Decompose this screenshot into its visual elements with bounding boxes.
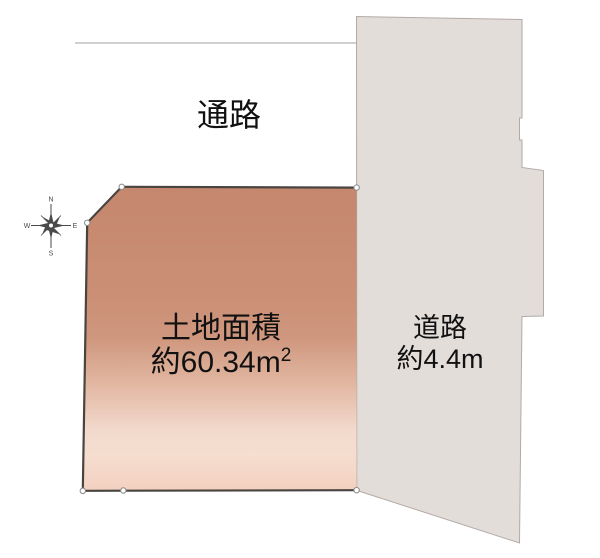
plot-area-sup: 2 (281, 345, 292, 366)
compass-rose-icon: N E S W (24, 197, 78, 258)
road-parcel-shape (357, 17, 544, 544)
plot-area-value: 約60.34m2 (101, 346, 341, 380)
compass-south-letter: S (49, 251, 54, 258)
compass-north-letter: N (48, 197, 53, 204)
compass-east-letter: E (73, 223, 78, 230)
corner-marker-bottom-right (354, 488, 359, 493)
corner-marker-top-right (354, 185, 359, 190)
site-plan-canvas: N E S W 通路 土地面積 約60.34m2 道路 約4.4m (0, 0, 600, 558)
road-label: 道路 約4.4m (379, 313, 501, 375)
plot-area-label: 土地面積 約60.34m2 (101, 312, 341, 380)
road-title: 道路 (379, 313, 501, 344)
site-plan-drawing: N E S W (0, 0, 600, 558)
corner-marker-bottom-left (80, 488, 85, 493)
passage-label: 通路 (149, 97, 309, 133)
compass-west-letter: W (24, 223, 31, 230)
road-width-value: 約4.4m (379, 344, 501, 375)
corner-marker-top-bevel (119, 184, 124, 189)
corner-marker-left-bevel (85, 220, 90, 225)
plot-area-title: 土地面積 (101, 312, 341, 346)
corner-marker-bottom-mid (121, 488, 126, 493)
